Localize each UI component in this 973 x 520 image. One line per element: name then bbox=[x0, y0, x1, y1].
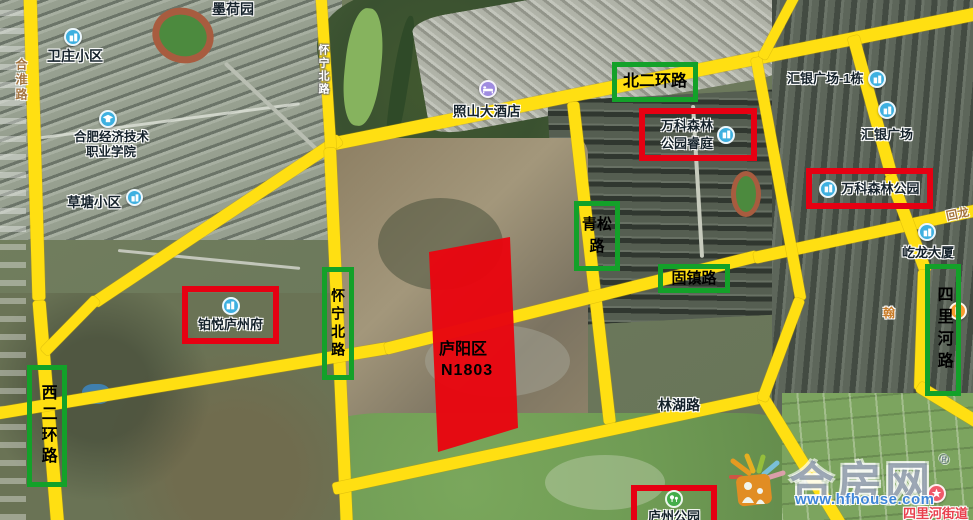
hotel-icon[interactable] bbox=[479, 80, 497, 98]
greenbox-silihe[interactable]: 四里河路 bbox=[925, 264, 961, 396]
building-glyph bbox=[68, 32, 79, 43]
roadname-hehuai: 合淮路 bbox=[13, 58, 30, 103]
redbox-text: 铂悦庐州府 bbox=[198, 316, 263, 334]
trees-glyph bbox=[668, 494, 680, 504]
greenbox-qingsong[interactable]: 青松路 bbox=[574, 201, 620, 271]
residence-icon[interactable] bbox=[717, 126, 735, 144]
office-tower-icon[interactable] bbox=[918, 223, 936, 241]
tower-icon[interactable] bbox=[868, 70, 886, 88]
hfhouse-logo-icon bbox=[727, 451, 789, 509]
poi-yilong-tower[interactable]: 屹龙大厦 bbox=[902, 242, 954, 261]
greenbox-beierhuan[interactable]: 北二环路 bbox=[612, 62, 698, 102]
redbox-text: 万科森林 公园睿庭 bbox=[661, 117, 713, 152]
residence-icon[interactable] bbox=[126, 189, 143, 206]
poi-college-line2[interactable]: 职业学院 bbox=[86, 141, 136, 160]
poi-moheyuan[interactable]: 墨荷园 bbox=[212, 0, 254, 19]
greenbox-guzhen[interactable]: 固镇路 bbox=[658, 264, 730, 293]
bed-glyph bbox=[482, 84, 494, 94]
poi-weizhuang[interactable]: 卫庄小区 bbox=[47, 46, 103, 66]
watermark-registered-mark: ® bbox=[939, 451, 949, 467]
redbox-text: 万科森林公园 bbox=[841, 180, 919, 198]
redbox-vanke-ruiting[interactable]: 万科森林 公园睿庭 bbox=[639, 108, 757, 161]
graduation-cap-glyph bbox=[102, 114, 114, 124]
poi-caotang[interactable]: 草塘小区 bbox=[67, 191, 121, 211]
building-glyph bbox=[130, 193, 140, 203]
parcel-code-label: N1803 bbox=[441, 362, 493, 380]
roadname-huaining: 怀宁北路 bbox=[315, 44, 331, 96]
redbox-text: 庐州公园 bbox=[648, 508, 700, 520]
residence-icon[interactable] bbox=[222, 297, 240, 315]
redbox-luzhou-park[interactable]: 庐州公园 bbox=[631, 485, 717, 520]
plaza-icon[interactable] bbox=[878, 101, 896, 119]
building-glyph bbox=[922, 227, 933, 238]
hfhouse-watermark: 合房网 ® www.hfhouse.com bbox=[727, 449, 957, 519]
greenbox-xierhuan[interactable]: 西二环路 bbox=[27, 365, 67, 487]
residence-icon[interactable] bbox=[819, 180, 837, 198]
stadium-track-small bbox=[731, 171, 761, 217]
label-linhu-road[interactable]: 林湖路 bbox=[658, 395, 700, 415]
poi-zhaoshan-hotel[interactable]: 照山大酒店 bbox=[453, 100, 521, 120]
poi-huiyin-tower[interactable]: 汇银广场-1栋 bbox=[787, 68, 864, 87]
redbox-vanke-park[interactable]: 万科森林公园 bbox=[806, 168, 933, 209]
residence-icon[interactable] bbox=[64, 28, 82, 46]
greenbox-huaining[interactable]: 怀宁北路 bbox=[322, 267, 354, 380]
park-icon[interactable] bbox=[665, 490, 683, 508]
parcel-district-label: 庐阳区 bbox=[439, 335, 487, 359]
building-glyph bbox=[721, 129, 732, 140]
building-glyph bbox=[225, 300, 236, 311]
poi-huiyin-plaza[interactable]: 汇银广场 bbox=[861, 124, 913, 143]
building-glyph bbox=[823, 183, 834, 194]
poi-han-partial[interactable]: 翰 bbox=[883, 304, 895, 321]
satellite-map[interactable]: 合淮路 怀宁北路 回龙 庐阳区 N1803 墨荷园 卫庄小区 合肥经济技术 职业… bbox=[0, 0, 973, 520]
building-glyph bbox=[882, 105, 893, 116]
watermark-url: www.hfhouse.com bbox=[795, 491, 934, 508]
building-glyph bbox=[872, 74, 883, 85]
redbox-boyue[interactable]: 铂悦庐州府 bbox=[182, 286, 279, 344]
